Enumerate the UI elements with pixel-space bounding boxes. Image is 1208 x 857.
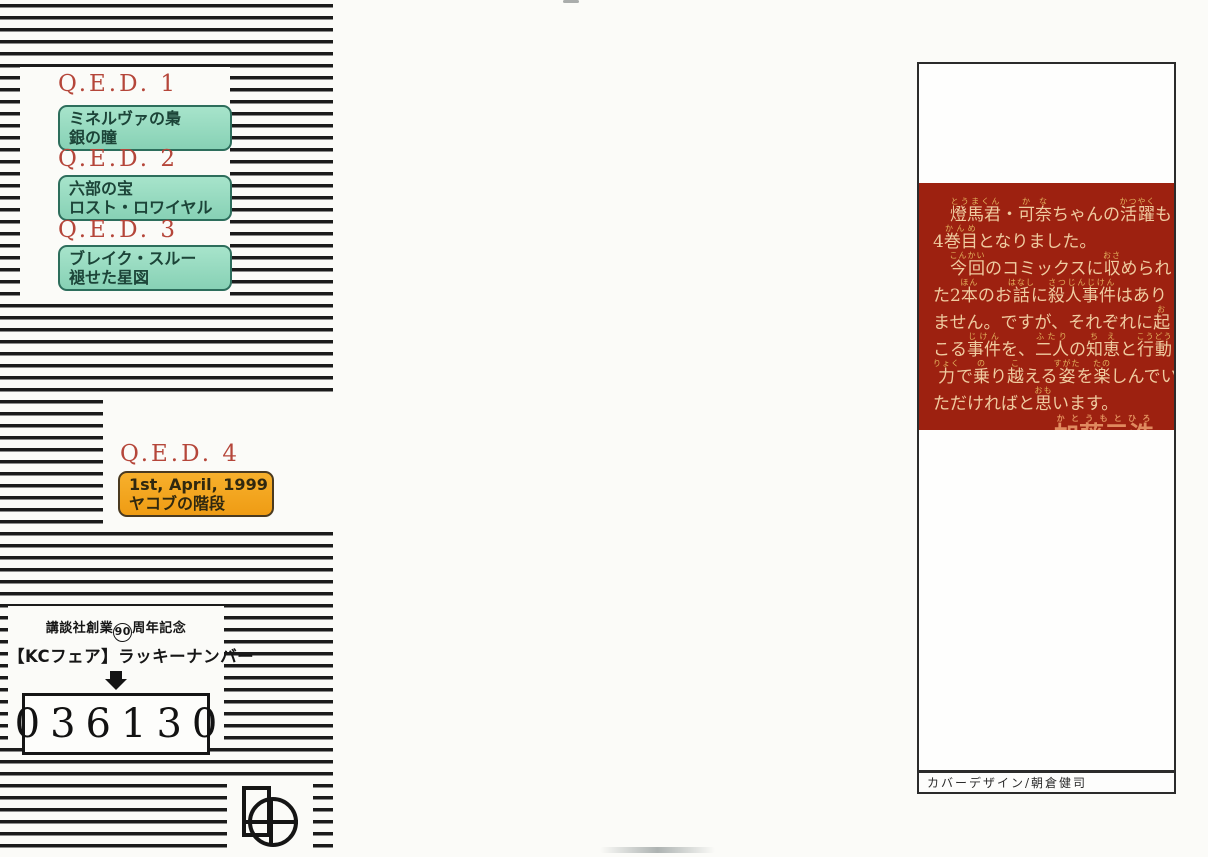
qed3-title: Q.E.D. 3	[58, 217, 178, 243]
scan-mark	[563, 0, 579, 3]
lucky-number-value: 036130	[15, 701, 228, 747]
qed1-story-line1: ミネルヴァの梟	[69, 109, 221, 128]
qed-list-block: Q.E.D. 1 ミネルヴァの梟 銀の瞳 Q.E.D. 2 六部の宝 ロスト・ロ…	[20, 67, 230, 303]
message-line: 力りょくで乗のり越こえる姿すがたを楽たのしんでい	[933, 359, 1168, 386]
message-line: こる事件じけんを、二人ふたりの知恵ちえと行動こうどう	[933, 332, 1168, 359]
cover-credit-bar: カバーデザイン/朝倉健司	[917, 772, 1176, 794]
qed1-title: Q.E.D. 1	[58, 71, 178, 97]
qed2-story-line1: 六部の宝	[69, 179, 221, 198]
cover-credit-text: カバーデザイン/朝倉健司	[919, 774, 1087, 791]
lucky-number-box: 036130	[22, 693, 210, 755]
scan-smudge	[600, 847, 715, 853]
qed4-story-line1: 1st, April, 1999	[129, 475, 263, 494]
author-note-panel: 燈馬君とうまくん・可奈かなちゃんの活躍かつやくも4巻目かんめとなりました。 今回…	[917, 62, 1176, 772]
lucky-number-block: 講談社創業90周年記念 【KCフェア】ラッキーナンバー 036130	[8, 606, 224, 746]
anniversary-label: 講談社創業90周年記念	[8, 617, 224, 642]
message-line: ません。ですが、それぞれに起お	[933, 305, 1168, 332]
qed2-story-line2: ロスト・ロワイヤル	[69, 198, 221, 217]
qed4-title: Q.E.D. 4	[120, 441, 240, 467]
qed3-story-line2: 褪せた星図	[69, 268, 221, 287]
message-line: た2本ほんのお話はなしに殺人事件さつじんじけんはあり	[933, 278, 1168, 305]
qed2-story-box: 六部の宝 ロスト・ロワイヤル	[58, 175, 232, 221]
message-line: 燈馬君とうまくん・可奈かなちゃんの活躍かつやくも	[933, 197, 1168, 224]
striped-background-panel: Q.E.D. 1 ミネルヴァの梟 銀の瞳 Q.E.D. 2 六部の宝 ロスト・ロ…	[0, 0, 333, 853]
qed3-story-line1: ブレイク・スルー	[69, 249, 221, 268]
publisher-logo-icon	[227, 779, 313, 853]
anniversary-pre: 講談社創業	[46, 621, 114, 636]
author-message-box: 燈馬君とうまくん・可奈かなちゃんの活躍かつやくも4巻目かんめとなりました。 今回…	[919, 183, 1174, 430]
message-lines: 燈馬君とうまくん・可奈かなちゃんの活躍かつやくも4巻目かんめとなりました。 今回…	[933, 197, 1168, 413]
qed1-story-box: ミネルヴァの梟 銀の瞳	[58, 105, 232, 151]
qed4-story-line2: ヤコブの階段	[129, 494, 263, 513]
qed4-block: Q.E.D. 4 1st, April, 1999 ヤコブの階段	[103, 399, 333, 532]
circled-90: 90	[113, 623, 132, 642]
author-name-ruby: かとうもとひろ	[1054, 414, 1154, 423]
message-line: 今回こんかいのコミックスに収おさめられ	[933, 251, 1168, 278]
down-arrow-icon	[105, 679, 127, 690]
author-signature: 加藤元浩かとうもとひろ	[1054, 414, 1154, 430]
qed2-title: Q.E.D. 2	[58, 146, 178, 172]
publisher-logo-block	[227, 779, 313, 853]
qed3-story-box: ブレイク・スルー 褪せた星図	[58, 245, 232, 291]
qed4-story-box: 1st, April, 1999 ヤコブの階段	[118, 471, 274, 517]
qed1-story-line2: 銀の瞳	[69, 128, 221, 147]
kc-fair-label: 【KCフェア】ラッキーナンバー	[8, 643, 224, 667]
anniversary-post: 周年記念	[132, 621, 186, 636]
